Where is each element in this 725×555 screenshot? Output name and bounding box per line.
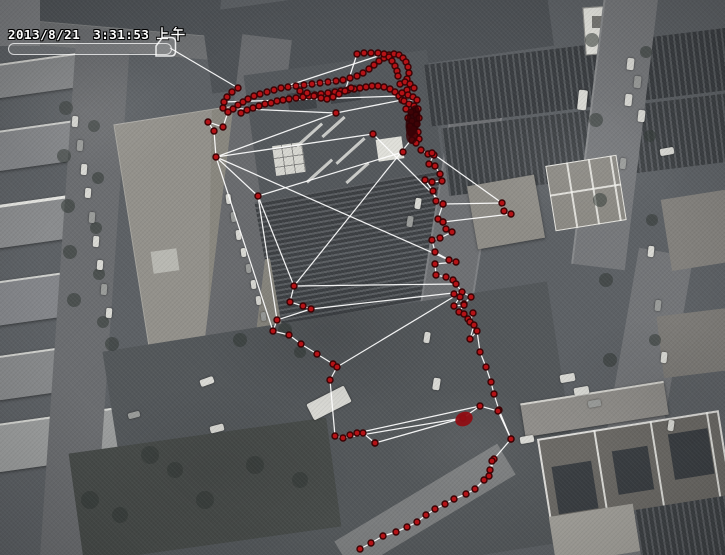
track-point[interactable]	[333, 78, 339, 84]
track-point[interactable]	[404, 524, 410, 530]
track-point[interactable]	[324, 96, 330, 102]
track-point[interactable]	[285, 84, 291, 90]
track-point[interactable]	[368, 50, 374, 56]
track-point[interactable]	[429, 179, 435, 185]
track-point[interactable]	[361, 50, 367, 56]
track-point[interactable]	[380, 533, 386, 539]
track-point[interactable]	[278, 85, 284, 91]
track-point[interactable]	[375, 50, 381, 56]
track-point[interactable]	[495, 408, 501, 414]
track-point[interactable]	[470, 310, 476, 316]
track-point[interactable]	[220, 124, 226, 130]
track-point[interactable]	[301, 82, 307, 88]
track-point[interactable]	[368, 540, 374, 546]
track-jump-line	[336, 100, 402, 113]
track-point[interactable]	[274, 317, 280, 323]
track-point[interactable]	[336, 91, 342, 97]
track-point[interactable]	[318, 95, 324, 101]
track-point[interactable]	[432, 506, 438, 512]
track-jump-line	[216, 113, 336, 157]
track-point[interactable]	[372, 440, 378, 446]
track-point[interactable]	[211, 128, 217, 134]
track-point[interactable]	[399, 90, 405, 96]
track-point[interactable]	[437, 171, 443, 177]
track-point[interactable]	[481, 477, 487, 483]
track-jump-line	[294, 284, 456, 286]
track-point[interactable]	[314, 351, 320, 357]
track-point[interactable]	[451, 303, 457, 309]
track-jump-line	[258, 196, 277, 320]
track-point[interactable]	[225, 109, 231, 115]
track-point[interactable]	[347, 432, 353, 438]
track-point[interactable]	[286, 96, 292, 102]
track-point[interactable]	[262, 101, 268, 107]
track-point[interactable]	[471, 322, 477, 328]
track-point[interactable]	[477, 349, 483, 355]
track-point[interactable]	[432, 163, 438, 169]
track-point[interactable]	[432, 261, 438, 267]
track-point[interactable]	[332, 433, 338, 439]
track-point[interactable]	[360, 430, 366, 436]
track-point[interactable]	[449, 229, 455, 235]
track-point[interactable]	[453, 259, 459, 265]
track-point[interactable]	[426, 161, 432, 167]
track-point[interactable]	[354, 51, 360, 57]
track-point[interactable]	[472, 486, 478, 492]
track-point[interactable]	[238, 110, 244, 116]
track-point[interactable]	[477, 403, 483, 409]
track-point[interactable]	[264, 89, 270, 95]
track-point[interactable]	[271, 87, 277, 93]
track-point[interactable]	[317, 80, 323, 86]
track-point[interactable]	[354, 73, 360, 79]
track-point[interactable]	[463, 491, 469, 497]
track-point[interactable]	[251, 93, 257, 99]
track-jump-line	[311, 292, 462, 309]
timestamp-date: 2013/8/21	[8, 27, 80, 42]
track-point[interactable]	[354, 430, 360, 436]
track-point[interactable]	[501, 208, 507, 214]
time-control: 2013/8/213:31:53 上午	[0, 0, 260, 70]
track-point[interactable]	[423, 512, 429, 518]
time-slider-handle[interactable]	[154, 35, 178, 58]
track-point[interactable]	[347, 75, 353, 81]
track-point[interactable]	[375, 83, 381, 89]
track-jump-line	[216, 157, 449, 260]
track-point[interactable]	[297, 88, 303, 94]
track-point[interactable]	[370, 131, 376, 137]
track-point[interactable]	[213, 154, 219, 160]
track-point[interactable]	[418, 147, 424, 153]
track-point[interactable]	[250, 105, 256, 111]
track-point[interactable]	[357, 546, 363, 552]
track-point[interactable]	[491, 391, 497, 397]
track-point[interactable]	[205, 119, 211, 125]
track-point[interactable]	[400, 149, 406, 155]
track-point[interactable]	[488, 379, 494, 385]
track-point[interactable]	[369, 83, 375, 89]
track-point[interactable]	[483, 364, 489, 370]
track-point[interactable]	[405, 64, 411, 70]
track-point[interactable]	[442, 501, 448, 507]
track-jump-line	[258, 152, 403, 196]
track-point[interactable]	[467, 336, 473, 342]
track-point[interactable]	[440, 201, 446, 207]
track-point[interactable]	[255, 193, 261, 199]
track-point[interactable]	[422, 177, 428, 183]
track-point[interactable]	[330, 94, 336, 100]
track-point[interactable]	[342, 88, 348, 94]
track-point[interactable]	[499, 200, 505, 206]
track-point[interactable]	[508, 436, 514, 442]
track-point[interactable]	[221, 99, 227, 105]
gps-track-overlay	[0, 0, 725, 555]
satellite-map-view[interactable]: 2013/8/213:31:53 上午	[0, 0, 725, 555]
track-point[interactable]	[270, 328, 276, 334]
track-point[interactable]	[468, 294, 474, 300]
track-point[interactable]	[333, 110, 339, 116]
track-point[interactable]	[280, 97, 286, 103]
track-point[interactable]	[433, 198, 439, 204]
track-point[interactable]	[308, 306, 314, 312]
track-cluster-blob	[406, 126, 418, 144]
track-point[interactable]	[406, 70, 412, 76]
track-point[interactable]	[414, 97, 420, 103]
track-point[interactable]	[411, 85, 417, 91]
track-point[interactable]	[340, 77, 346, 83]
track-point[interactable]	[325, 79, 331, 85]
track-point[interactable]	[286, 332, 292, 338]
track-point[interactable]	[360, 70, 366, 76]
track-point[interactable]	[311, 93, 317, 99]
track-point[interactable]	[300, 303, 306, 309]
track-point[interactable]	[439, 178, 445, 184]
track-point[interactable]	[363, 84, 369, 90]
track-point[interactable]	[432, 249, 438, 255]
track-point[interactable]	[357, 85, 363, 91]
track-point[interactable]	[298, 341, 304, 347]
track-point[interactable]	[334, 364, 340, 370]
track-point[interactable]	[433, 272, 439, 278]
track-point[interactable]	[443, 274, 449, 280]
track-point[interactable]	[453, 281, 459, 287]
track-point[interactable]	[327, 377, 333, 383]
track-point[interactable]	[256, 103, 262, 109]
timestamp-time: 3:31:53	[93, 27, 149, 42]
track-point[interactable]	[309, 81, 315, 87]
track-point[interactable]	[245, 96, 251, 102]
track-point[interactable]	[440, 219, 446, 225]
track-point[interactable]	[340, 435, 346, 441]
track-point[interactable]	[287, 299, 293, 305]
track-point[interactable]	[443, 226, 449, 232]
track-point[interactable]	[257, 91, 263, 97]
track-point[interactable]	[451, 291, 457, 297]
track-point[interactable]	[437, 235, 443, 241]
track-point[interactable]	[508, 211, 514, 217]
time-slider-track[interactable]	[8, 43, 172, 55]
track-point[interactable]	[381, 84, 387, 90]
track-point[interactable]	[487, 467, 493, 473]
track-point[interactable]	[446, 257, 452, 263]
track-point[interactable]	[414, 519, 420, 525]
track-point[interactable]	[304, 90, 310, 96]
track-point[interactable]	[430, 188, 436, 194]
track-point[interactable]	[268, 100, 274, 106]
track-point[interactable]	[457, 294, 463, 300]
track-point[interactable]	[393, 529, 399, 535]
track-point[interactable]	[244, 107, 250, 113]
track-point[interactable]	[395, 73, 401, 79]
track-point[interactable]	[291, 283, 297, 289]
track-point[interactable]	[274, 98, 280, 104]
track-jump-line	[294, 140, 411, 286]
track-point[interactable]	[429, 237, 435, 243]
track-point[interactable]	[429, 150, 435, 156]
track-point[interactable]	[461, 302, 467, 308]
track-point[interactable]	[474, 328, 480, 334]
track-point[interactable]	[489, 458, 495, 464]
track-point[interactable]	[348, 85, 354, 91]
track-point[interactable]	[229, 89, 235, 95]
track-point[interactable]	[235, 85, 241, 91]
track-point[interactable]	[293, 95, 299, 101]
track-point[interactable]	[451, 496, 457, 502]
track-segment-line	[208, 112, 375, 443]
track-jump-line	[216, 134, 373, 157]
